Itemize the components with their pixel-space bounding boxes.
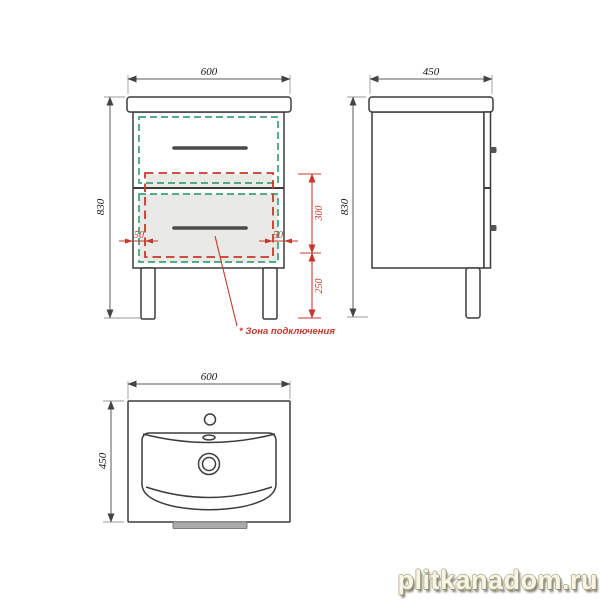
- side-view: 450 830: [339, 66, 497, 318]
- side-leg: [466, 268, 480, 318]
- front-view: 600 830: [95, 66, 335, 337]
- front-leg-right: [263, 268, 277, 319]
- front-leg-left: [141, 268, 155, 319]
- connection-zone-note: * Зона подключения: [239, 326, 335, 337]
- side-height-label: 830: [339, 198, 351, 215]
- technical-drawing-page: 600 830: [0, 0, 600, 600]
- basin-top-view: 600 450: [97, 371, 290, 529]
- drawer-front-edge: [484, 112, 491, 268]
- side-depth-label: 450: [423, 66, 440, 78]
- zone-height-label: 300: [314, 206, 325, 222]
- countertop-side: [369, 97, 493, 112]
- zone-floor-offset-label: 250: [314, 279, 325, 294]
- basin-width-label: 600: [201, 371, 218, 383]
- cabinet-side-body: [372, 112, 484, 268]
- front-width-label: 600: [201, 66, 218, 78]
- basin-rim: [128, 401, 290, 522]
- back-edge-strip: [173, 522, 247, 529]
- offset-right-label: 50: [273, 230, 283, 241]
- vanity-technical-drawing: 600 830: [0, 0, 600, 600]
- basin-depth-label: 450: [97, 452, 109, 469]
- zone-highlight-upper: [146, 174, 272, 187]
- offset-left-label: 50: [134, 230, 144, 241]
- handle-side-lower: [491, 225, 497, 231]
- dim-zone-heights: 300 250: [298, 174, 325, 318]
- front-height-label: 830: [95, 198, 107, 215]
- handle-side-upper: [491, 147, 497, 153]
- site-watermark: plitkanadom.ru: [397, 565, 598, 596]
- countertop: [127, 97, 291, 112]
